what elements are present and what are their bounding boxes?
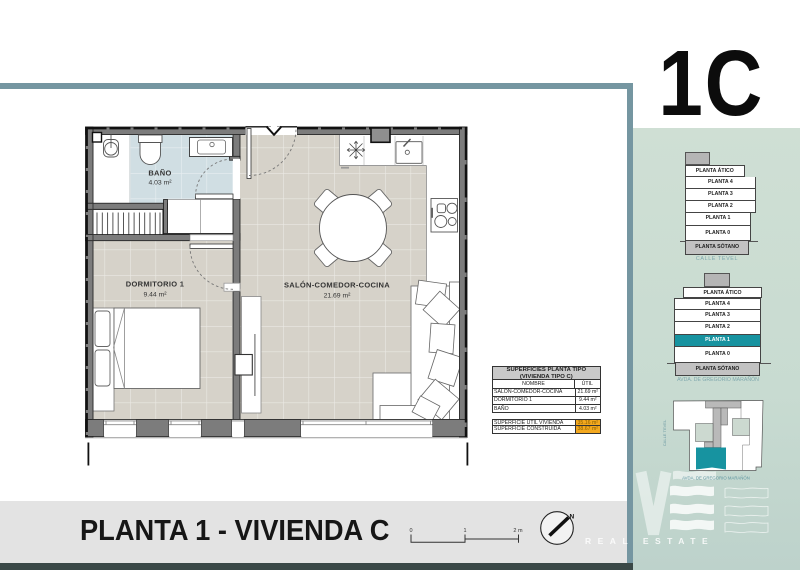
svg-text:CALLE TEVEL: CALLE TEVEL [662,419,667,446]
svg-text:BAÑO: BAÑO [148,169,171,178]
svg-text:SALÓN-COMEDOR-COCINA: SALÓN-COMEDOR-COCINA [284,281,390,290]
svg-text:AVDA. DE GREGORIO MARAÑÓN: AVDA. DE GREGORIO MARAÑÓN [682,476,750,481]
svg-text:21.69 m²: 21.69 m² [324,293,352,300]
svg-text:N: N [570,514,575,521]
svg-text:1: 1 [463,528,466,534]
svg-text:4.03 m²: 4.03 m² [148,180,172,187]
svg-text:2 m: 2 m [513,528,523,534]
svg-text:0: 0 [409,528,412,534]
svg-text:9.44 m²: 9.44 m² [143,292,167,299]
svg-text:DORMITORIO 1: DORMITORIO 1 [126,280,184,289]
